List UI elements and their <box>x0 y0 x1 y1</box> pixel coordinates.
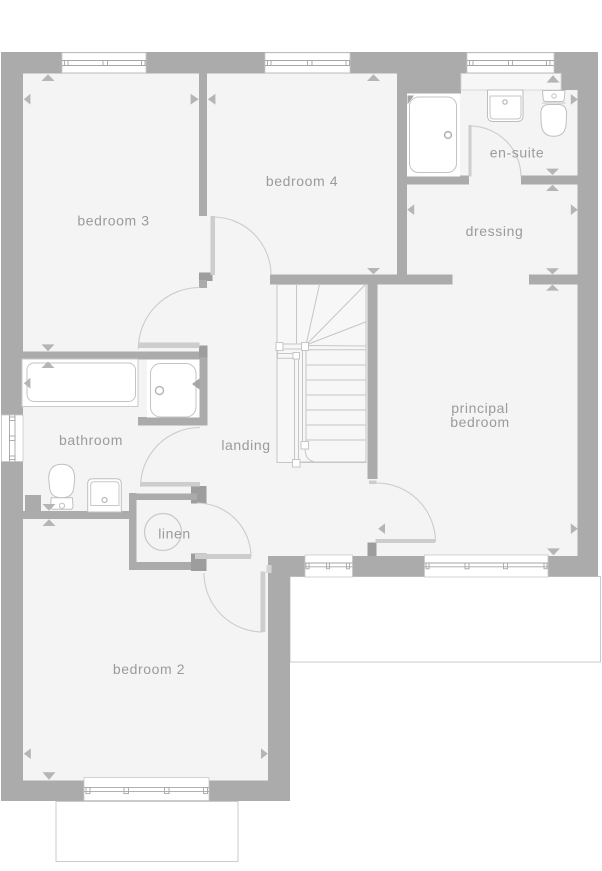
svg-text:en-suite: en-suite <box>490 145 545 161</box>
svg-text:bedroom 2: bedroom 2 <box>113 661 185 677</box>
svg-text:landing: landing <box>221 437 270 453</box>
svg-text:dressing: dressing <box>466 223 524 239</box>
svg-text:linen: linen <box>158 526 191 542</box>
svg-text:bathroom: bathroom <box>59 432 123 448</box>
svg-text:bedroom 4: bedroom 4 <box>266 173 338 189</box>
svg-text:bedroom 3: bedroom 3 <box>77 213 149 229</box>
svg-text:bedroom: bedroom <box>450 414 509 430</box>
